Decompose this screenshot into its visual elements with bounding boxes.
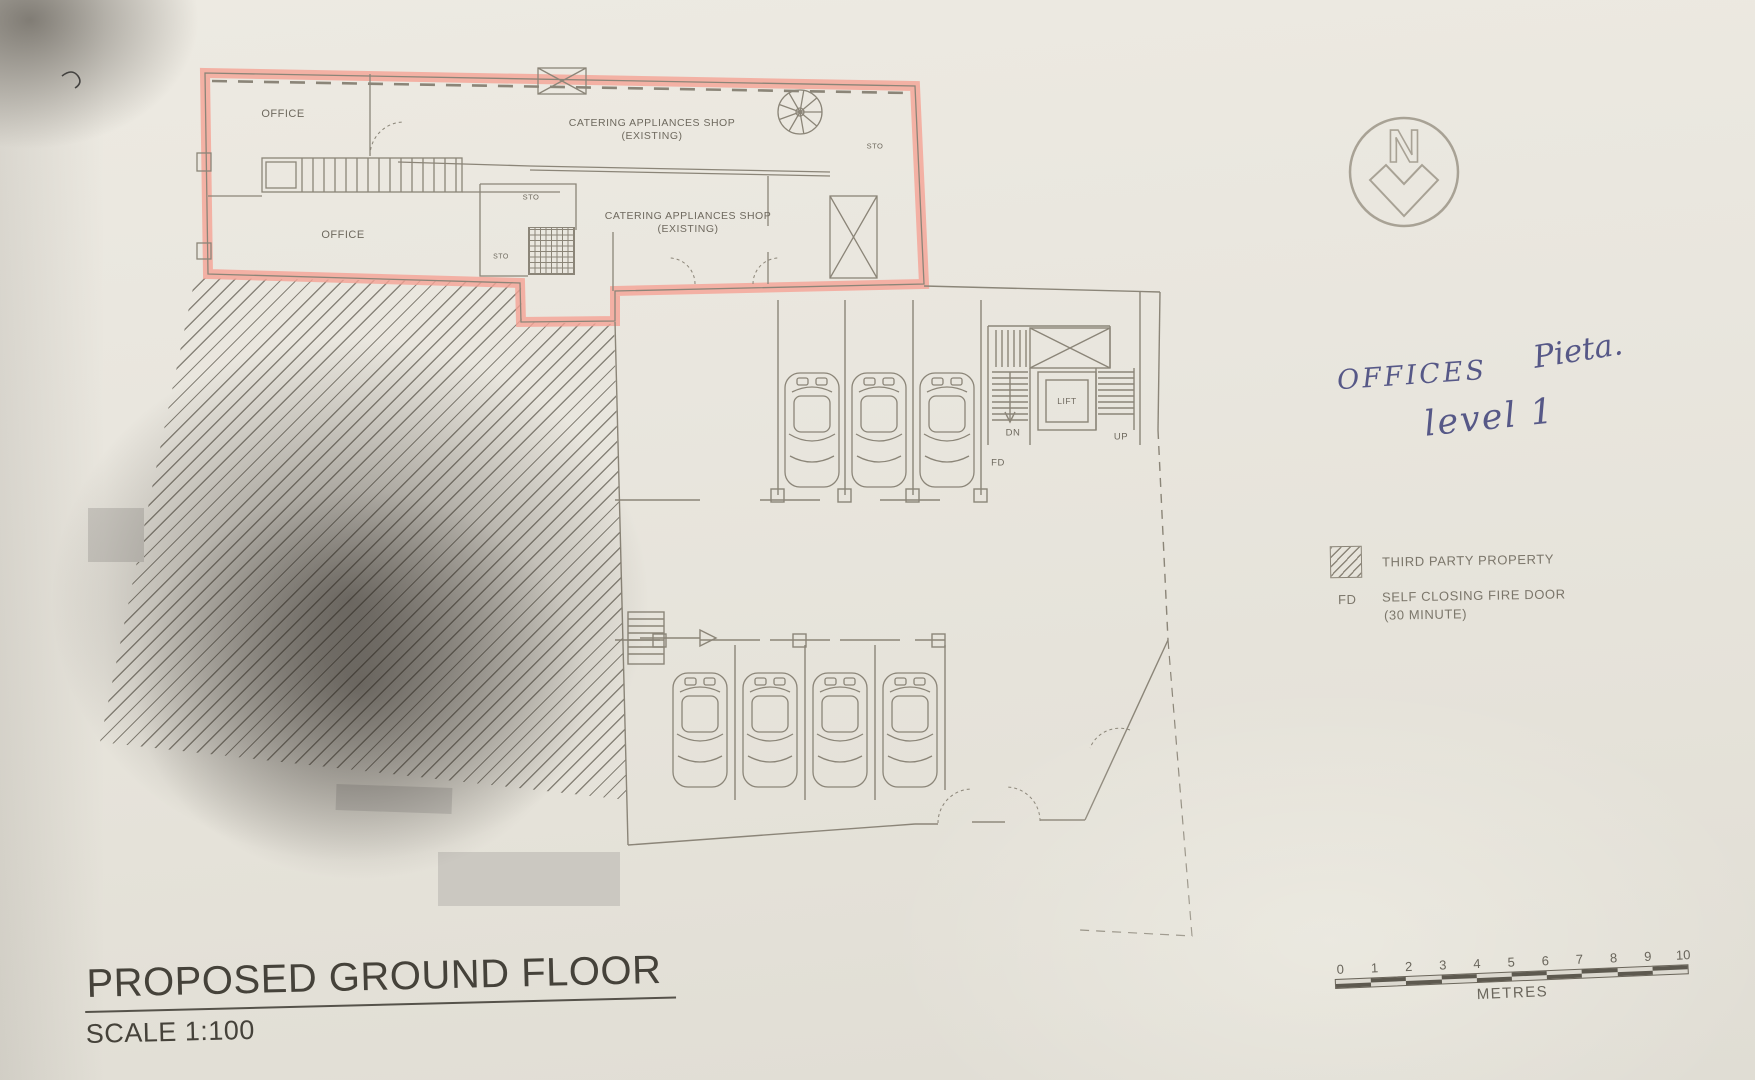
north-arrow-icon: N [1350,118,1458,226]
title-block: PROPOSED GROUND FLOOR SCALE 1:100 [84,948,677,1050]
floor-plan-photo: N OFFICE CATERING APPLIANCES SHOP (EXIST… [0,0,1755,1080]
grey-patch-left [88,508,144,562]
label-catering-top-1: CATERING APPLIANCES SHOP [569,117,735,129]
hatch-legend-icon [1330,546,1363,579]
legend-fd-text-2: (30 MINUTE) [1384,606,1467,622]
floor-plan-drawing: N [0,0,1755,1080]
label-catering-top-2: (EXISTING) [621,130,682,142]
label-sto-right: STO [867,142,884,151]
grey-patch-small [336,784,453,814]
label-office-bottom: OFFICE [321,229,364,241]
label-lift: LIFT [1057,396,1076,406]
stair-core [988,292,1140,445]
label-sto-small: STO [493,254,509,261]
label-catering-bottom-1: CATERING APPLIANCES SHOP [605,210,771,222]
highlighted-outline [205,73,924,322]
spiral-stair [778,90,822,134]
label-catering-bottom-2: (EXISTING) [657,223,718,235]
legend-fd-text-1: SELF CLOSING FIRE DOOR [1382,586,1566,604]
pen-mark [62,72,80,88]
entry-stair-arrow [628,612,716,664]
label-dn: DN [1006,428,1021,439]
label-fd: FD [991,458,1005,469]
label-sto-mid: STO [523,193,540,202]
parked-cars [673,373,974,787]
north-letter: N [1387,120,1420,172]
label-office-top: OFFICE [261,108,304,120]
label-up: UP [1114,432,1128,443]
shaft-grid [528,227,575,275]
legend-third-party: THIRD PARTY PROPERTY [1382,551,1554,569]
garage-plan [615,286,1192,936]
legend-fd-key: FD [1338,592,1357,607]
grey-patch-title [438,852,620,906]
